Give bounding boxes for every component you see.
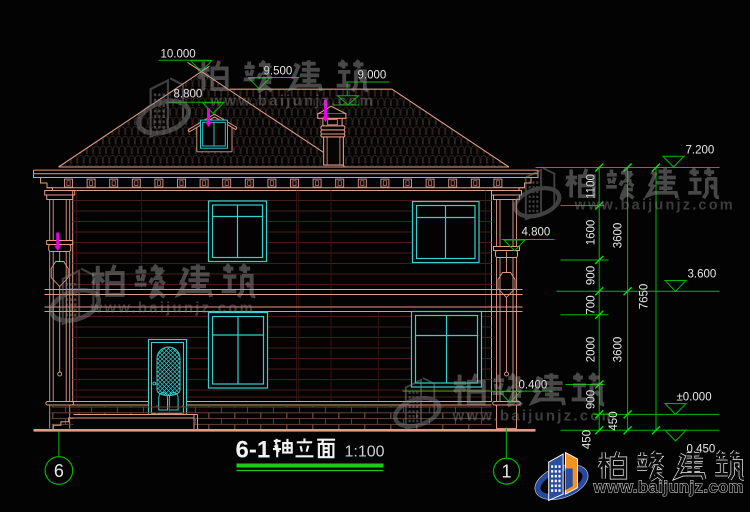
svg-text:www.baijunjz.com: www.baijunjz.com <box>90 300 256 317</box>
svg-text:1: 1 <box>501 462 511 482</box>
svg-text:1600: 1600 <box>586 220 598 246</box>
svg-text:450: 450 <box>582 430 594 449</box>
svg-text:±0.000: ±0.000 <box>677 392 712 404</box>
svg-text:10.000: 10.000 <box>161 49 196 61</box>
svg-text:www.baijunjz.com: www.baijunjz.com <box>210 93 376 110</box>
svg-text:900: 900 <box>586 266 598 285</box>
svg-text:3600: 3600 <box>613 337 625 363</box>
svg-text:2000: 2000 <box>586 337 598 363</box>
svg-text:3600: 3600 <box>613 223 625 249</box>
svg-text:7.200: 7.200 <box>686 145 715 157</box>
svg-text:www.baijunjz.com: www.baijunjz.com <box>574 198 735 214</box>
svg-text:4.800: 4.800 <box>522 227 551 239</box>
svg-text:www.baijunjz.com: www.baijunjz.com <box>593 479 744 497</box>
svg-text:6-1: 6-1 <box>236 437 271 464</box>
svg-text:8.800: 8.800 <box>174 89 203 101</box>
svg-text:3.600: 3.600 <box>688 269 717 281</box>
svg-text:1:100: 1:100 <box>345 444 385 461</box>
svg-text:7650: 7650 <box>639 284 651 310</box>
svg-text:700: 700 <box>586 295 598 314</box>
svg-text:6: 6 <box>54 461 64 481</box>
svg-text:www.baijunjz.com: www.baijunjz.com <box>452 408 618 425</box>
